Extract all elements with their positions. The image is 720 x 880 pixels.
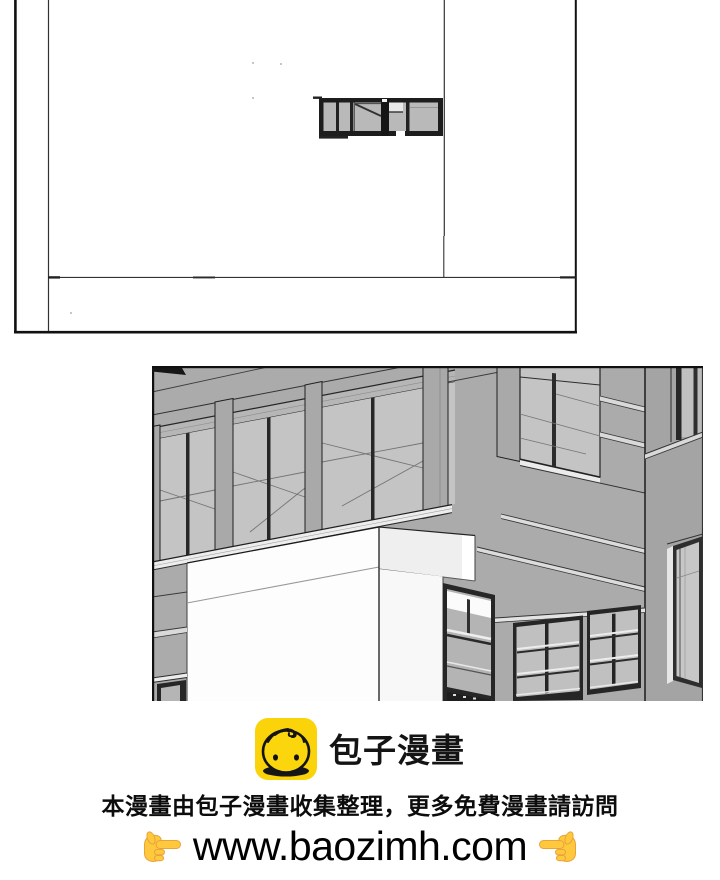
brand-name: 包子漫畫	[329, 732, 465, 767]
sketch-panel	[0, 0, 720, 345]
building-render-panel	[152, 366, 703, 701]
sketch-specks	[70, 62, 282, 314]
footer-url: www.baozimh.com	[193, 826, 527, 867]
pointing-left-hand-icon	[538, 830, 579, 863]
pointing-right-hand-icon	[141, 830, 182, 863]
footer-url-row: www.baozimh.com	[0, 823, 720, 869]
sketch-frame	[14, 0, 577, 333]
baozi-bun-icon	[255, 718, 317, 780]
baozi-logo	[255, 718, 317, 780]
sketch-window-cluster	[313, 97, 443, 139]
brand-row: 包子漫畫	[0, 717, 720, 781]
footer-notice: 本漫畫由包子漫畫收集整理，更多免費漫畫請訪問	[0, 793, 720, 820]
